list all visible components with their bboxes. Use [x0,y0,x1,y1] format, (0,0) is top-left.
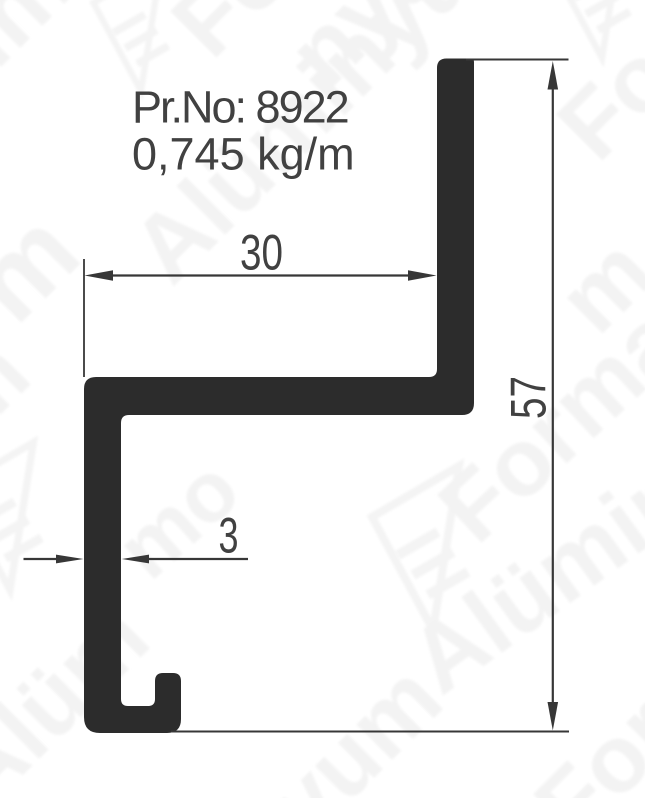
svg-text:30: 30 [240,225,283,281]
svg-text:Pr.No: 8922: Pr.No: 8922 [132,82,348,133]
svg-text:0,745 kg/m: 0,745 kg/m [132,129,355,180]
svg-text:57: 57 [501,376,557,419]
svg-text:3: 3 [219,508,239,564]
